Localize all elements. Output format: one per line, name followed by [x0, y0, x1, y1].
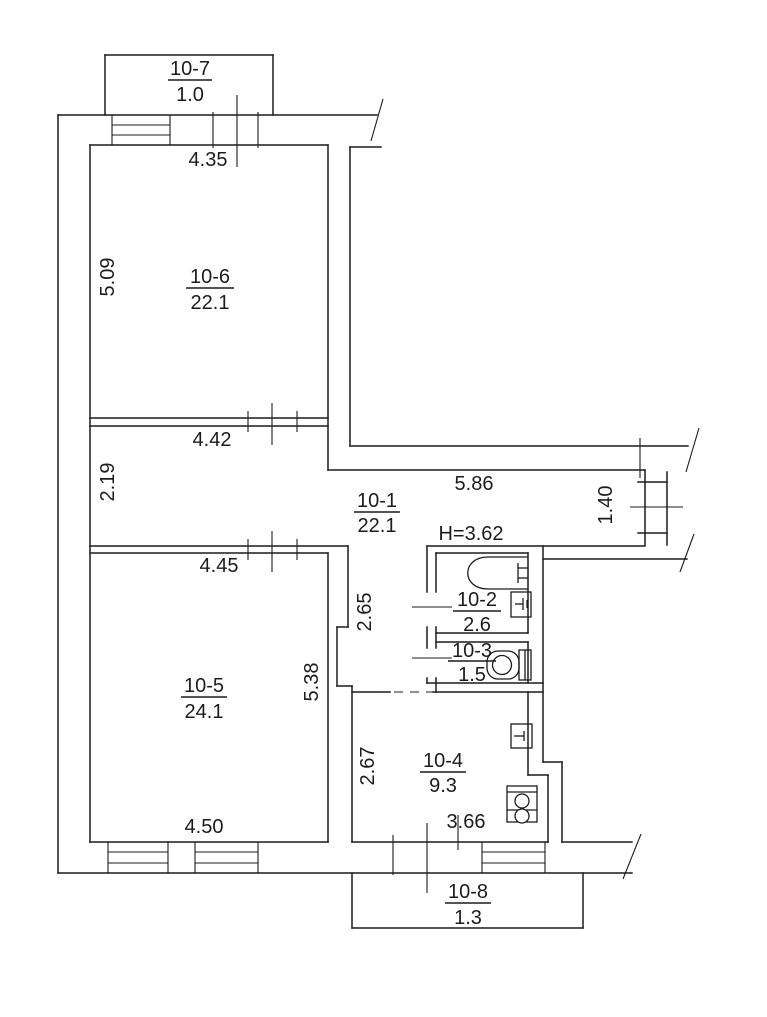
floor-plan-canvas: 10-7 1.0 10-6 22.1 10-1 22.1 10-2 2.6 10…: [0, 0, 767, 1017]
window-bottom-left-icon: [108, 842, 168, 873]
room-area: 24.1: [185, 701, 224, 723]
kitchen-sink-icon: [511, 724, 532, 748]
room-label-bath: 10-2 2.6: [453, 589, 501, 636]
room-area: 22.1: [191, 292, 230, 314]
room-number: 10-1: [357, 490, 397, 512]
dim-hall-depth: 2.19: [97, 463, 119, 502]
room-number: 10-5: [184, 675, 224, 697]
dim-living-width-bottom: 4.50: [185, 816, 224, 838]
room-area: 1.5: [458, 664, 486, 686]
stove-icon: [507, 786, 537, 823]
window-kitchen-icon: [482, 842, 545, 873]
dim-hall-width: 4.42: [193, 429, 232, 451]
room-area: 1.3: [454, 907, 482, 929]
room-label-wc: 10-3 1.5: [448, 640, 496, 686]
room-label-hall: 10-1 22.1: [354, 490, 400, 537]
exterior-walls: [58, 115, 632, 873]
break-lines: [371, 99, 699, 879]
room-label-kitchen: 10-4 9.3: [420, 750, 466, 797]
room-label-balcony-bottom: 10-8 1.3: [445, 881, 491, 929]
room-label-bedroom: 10-6 22.1: [186, 266, 234, 314]
room-number: 10-2: [457, 589, 497, 611]
window-bottom-mid-icon: [195, 842, 258, 873]
dim-kitchen-depth: 2.67: [357, 747, 379, 786]
room-area: 2.6: [463, 614, 491, 636]
room-number: 10-6: [190, 266, 230, 288]
room-number: 10-8: [448, 881, 488, 903]
dim-hall-arm-width: 1.40: [595, 486, 617, 525]
bathtub-icon: [468, 557, 528, 589]
room-number: 10-4: [423, 750, 463, 772]
dim-bedroom-width: 4.35: [189, 149, 228, 171]
room-area: 9.3: [429, 775, 457, 797]
room-number: 10-7: [170, 58, 210, 80]
room-area: 1.0: [176, 84, 204, 106]
dim-living-depth: 5.38: [301, 663, 323, 702]
ceiling-height-note: H=3.62: [438, 523, 503, 545]
dim-nook-depth: 2.65: [354, 593, 376, 632]
window-top-icon: [112, 115, 170, 145]
room-label-balcony-top: 10-7 1.0: [168, 58, 212, 106]
dim-bedroom-depth: 5.09: [97, 258, 119, 297]
room-number: 10-3: [452, 640, 492, 662]
room-area: 22.1: [358, 515, 397, 537]
dim-hall-arm-length: 5.86: [455, 473, 494, 495]
toilet-icon: [487, 650, 531, 680]
room-label-living: 10-5 24.1: [181, 675, 227, 723]
floor-plan-drawing: 10-7 1.0 10-6 22.1 10-1 22.1 10-2 2.6 10…: [0, 0, 767, 1017]
dim-kitchen-width: 3.66: [447, 811, 486, 833]
dim-living-width-top: 4.45: [200, 555, 239, 577]
